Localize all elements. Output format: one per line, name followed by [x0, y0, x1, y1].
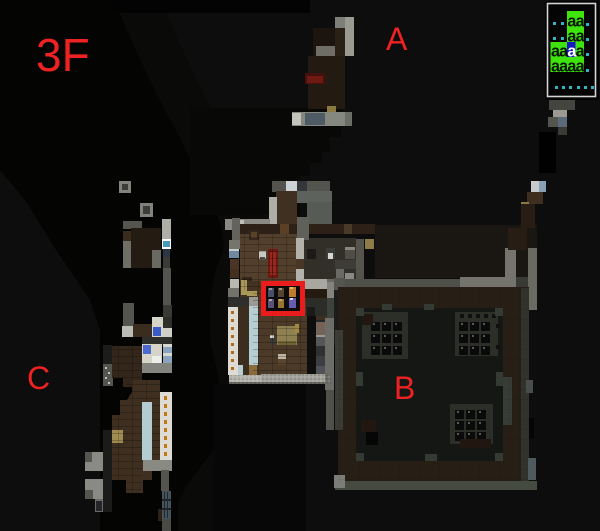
svg-text:3F: 3F [36, 29, 90, 81]
svg-text:B: B [394, 370, 415, 406]
svg-text:A: A [386, 21, 408, 57]
svg-text:a: a [575, 58, 585, 77]
svg-text:C: C [27, 360, 50, 396]
